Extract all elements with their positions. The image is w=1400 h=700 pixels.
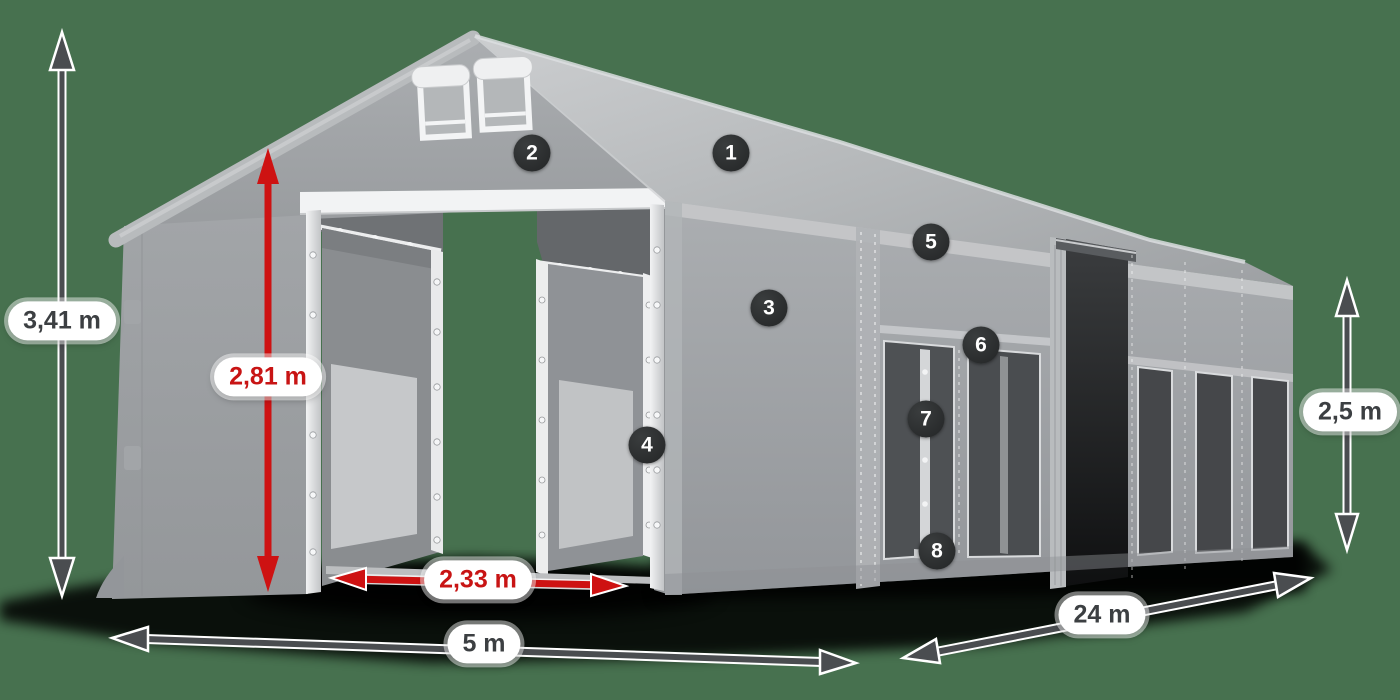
tent-diagram-canvas: 3,41 m 2,81 m 2,33 m 5 m 24 m 2,5 m 1 2 … [0,0,1400,700]
dimension-label-total-height: 3,41 m [8,301,116,340]
callout-badge-6[interactable]: 6 [963,327,1000,364]
dimension-label-door-height: 2,81 m [214,357,322,396]
callout-badge-1[interactable]: 1 [713,135,750,172]
callout-badge-5[interactable]: 5 [913,224,950,261]
tent-interior [310,204,666,586]
tent-illustration [0,0,1400,700]
callout-badge-2[interactable]: 2 [514,135,551,172]
dimension-label-side-length: 24 m [1059,595,1146,634]
callout-badge-8[interactable]: 8 [919,533,956,570]
callout-badge-3[interactable]: 3 [751,290,788,327]
callout-badge-4[interactable]: 4 [629,427,666,464]
callout-badge-7[interactable]: 7 [908,401,945,438]
dimension-label-door-width: 2,33 m [424,560,532,599]
dimension-label-front-width: 5 m [447,624,520,663]
dimension-label-side-height: 2,5 m [1303,392,1397,431]
